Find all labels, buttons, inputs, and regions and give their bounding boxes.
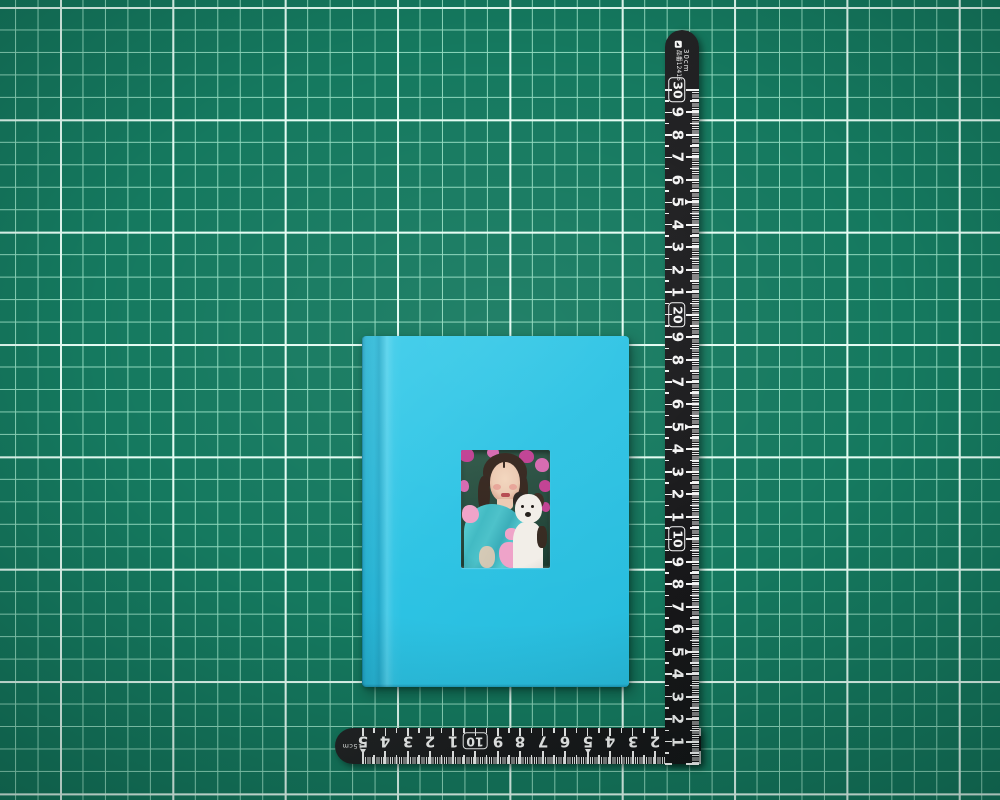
ruler-number: 6 — [670, 175, 685, 185]
ruler-number: 30 — [669, 77, 686, 102]
cm-tick — [632, 751, 634, 764]
cm-tick — [665, 763, 672, 765]
ruler-number: 2 — [670, 264, 685, 274]
half-cm-tick — [621, 728, 623, 733]
cm-tick — [699, 751, 701, 764]
cm-tick — [519, 751, 521, 764]
cm-tick — [686, 269, 699, 271]
half-cm-tick — [665, 482, 669, 484]
cm-tick — [686, 89, 699, 91]
cover-photo-inset — [461, 450, 550, 568]
cm-tick — [407, 751, 409, 764]
half-cm-tick — [690, 527, 699, 529]
ruler-number: 9 — [670, 107, 685, 117]
half-cm-tick — [665, 595, 669, 597]
ruler-number: 5 — [670, 422, 685, 432]
half-cm-tick — [576, 728, 578, 733]
horizontal-ruler-15cm: 15cm 5432110987654321 — [335, 728, 701, 764]
cm-arrow-marker — [585, 749, 591, 754]
cm-tick — [686, 718, 699, 720]
half-cm-tick — [576, 755, 578, 764]
ruler-number: 4 — [670, 220, 685, 230]
ruler-number: 2 — [670, 489, 685, 499]
half-cm-tick — [690, 100, 699, 102]
ruler-number: 6 — [670, 624, 685, 634]
cm-tick — [686, 741, 699, 743]
half-cm-tick — [665, 123, 669, 125]
photo-shading — [461, 450, 550, 568]
ruler-number: 7 — [670, 601, 685, 611]
ruler-number: 10 — [669, 527, 686, 552]
ruler-number: 9 — [493, 734, 503, 749]
half-cm-tick — [418, 755, 420, 764]
ruler-number: 3 — [670, 467, 685, 477]
ruler-number: 9 — [670, 332, 685, 342]
cm-tick — [699, 728, 701, 736]
half-cm-tick — [690, 392, 699, 394]
half-cm-tick — [531, 728, 533, 733]
ruler-number: 3 — [670, 242, 685, 252]
cm-tick — [686, 448, 699, 450]
cm-tick — [609, 751, 611, 764]
cm-tick — [686, 696, 699, 698]
half-cm-tick — [665, 730, 669, 732]
half-cm-tick — [531, 755, 533, 764]
shinwa-logo-icon — [674, 41, 681, 48]
half-cm-tick — [665, 752, 669, 754]
half-cm-tick — [690, 280, 699, 282]
half-cm-tick — [665, 348, 669, 350]
half-cm-tick — [690, 550, 699, 552]
half-cm-tick — [690, 258, 699, 260]
ruler-number: 5 — [670, 197, 685, 207]
half-cm-tick — [665, 213, 669, 215]
half-cm-tick — [690, 325, 699, 327]
ruler-number: 5 — [582, 734, 592, 749]
half-cm-tick — [665, 280, 669, 282]
half-cm-tick — [373, 755, 375, 764]
ruler-number: 5 — [670, 646, 685, 656]
half-cm-tick — [508, 755, 510, 764]
cm-tick — [686, 403, 699, 405]
cm-tick — [429, 751, 431, 764]
ruler-number: 3 — [627, 734, 637, 749]
half-cm-tick — [690, 617, 699, 619]
cm-tick — [452, 751, 454, 764]
half-cm-tick — [665, 505, 669, 507]
half-cm-tick — [441, 728, 443, 733]
ruler-number: 2 — [650, 734, 660, 749]
cm-tick — [686, 673, 699, 675]
cm-tick — [686, 516, 699, 518]
half-cm-tick — [508, 728, 510, 733]
ruler-number: 2 — [425, 734, 435, 749]
half-cm-tick — [690, 572, 699, 574]
cm-tick — [686, 156, 699, 158]
half-cm-tick — [643, 755, 645, 764]
ruler-number: 6 — [560, 734, 570, 749]
ruler-number: 7 — [670, 377, 685, 387]
half-cm-tick — [441, 755, 443, 764]
half-cm-tick — [690, 752, 699, 754]
half-cm-tick — [598, 755, 600, 764]
cm-tick — [686, 314, 699, 316]
cm-tick — [654, 751, 656, 764]
half-cm-tick — [665, 415, 669, 417]
half-cm-tick — [665, 707, 669, 709]
half-cm-tick — [690, 348, 699, 350]
ruler-number: 20 — [669, 302, 686, 327]
half-cm-tick — [665, 572, 669, 574]
half-cm-tick — [463, 755, 465, 764]
cm-tick — [686, 583, 699, 585]
half-cm-tick — [665, 145, 669, 147]
photo-stage: 15cm 5432110987654321 30cm 品番12416 30987… — [0, 0, 1000, 800]
vertical-ruler-30cm: 30cm 品番12416 309876543212098765432110987… — [665, 30, 699, 764]
book-page-edge — [362, 684, 629, 687]
cm-tick — [686, 561, 699, 563]
cm-tick — [686, 179, 699, 181]
half-cm-tick — [690, 190, 699, 192]
cm-tick — [686, 763, 699, 765]
ruler-number: 4 — [605, 734, 615, 749]
half-cm-tick — [665, 392, 669, 394]
cm-tick — [686, 111, 699, 113]
book-spine — [362, 336, 402, 687]
ruler-number: 6 — [670, 399, 685, 409]
cm-tick — [497, 751, 499, 764]
cm-tick — [686, 471, 699, 473]
book — [362, 336, 629, 687]
cm-arrow-marker — [360, 749, 366, 754]
half-cm-tick — [621, 755, 623, 764]
ruler-number: 2 — [670, 714, 685, 724]
cm-tick — [686, 246, 699, 248]
half-cm-tick — [690, 437, 699, 439]
half-cm-tick — [690, 460, 699, 462]
half-cm-tick — [665, 640, 669, 642]
ruler-number: 1 — [670, 736, 685, 746]
half-cm-tick — [690, 662, 699, 664]
half-cm-tick — [665, 460, 669, 462]
half-cm-tick — [486, 755, 488, 764]
half-cm-tick — [690, 730, 699, 732]
half-cm-tick — [690, 303, 699, 305]
cm-tick — [686, 606, 699, 608]
half-cm-tick — [665, 370, 669, 372]
ruler-number: 4 — [670, 669, 685, 679]
half-cm-tick — [690, 235, 699, 237]
ruler-number: 4 — [380, 734, 390, 749]
half-cm-tick — [690, 482, 699, 484]
ruler-number: 8 — [515, 734, 525, 749]
ruler-number: 8 — [670, 354, 685, 364]
half-cm-tick — [690, 505, 699, 507]
cm-tick — [542, 751, 544, 764]
ruler-number: 3 — [403, 734, 413, 749]
ruler-number: 1 — [670, 512, 685, 522]
ruler-number: 8 — [670, 579, 685, 589]
ruler-number: 7 — [670, 152, 685, 162]
cm-arrow-marker — [685, 424, 690, 430]
ruler-number: 10 — [463, 733, 488, 750]
half-cm-tick — [643, 728, 645, 733]
half-cm-tick — [665, 235, 669, 237]
half-cm-tick — [553, 728, 555, 733]
half-cm-tick — [396, 728, 398, 733]
half-cm-tick — [690, 595, 699, 597]
ruler-number: 4 — [670, 444, 685, 454]
cm-tick — [384, 751, 386, 764]
half-cm-tick — [553, 755, 555, 764]
half-cm-tick — [690, 145, 699, 147]
half-cm-tick — [598, 728, 600, 733]
half-cm-tick — [665, 437, 669, 439]
half-cm-tick — [690, 168, 699, 170]
half-cm-tick — [665, 190, 669, 192]
half-cm-tick — [690, 640, 699, 642]
half-cm-tick — [373, 728, 375, 733]
ruler-number: 9 — [670, 557, 685, 567]
cm-tick — [474, 751, 476, 764]
ruler-number: 7 — [537, 734, 547, 749]
ruler-number: 8 — [670, 130, 685, 140]
cm-tick — [564, 751, 566, 764]
half-cm-tick — [690, 685, 699, 687]
cm-tick — [686, 493, 699, 495]
cm-tick — [686, 538, 699, 540]
half-cm-tick — [665, 258, 669, 260]
cm-tick — [686, 336, 699, 338]
cm-tick — [686, 628, 699, 630]
half-cm-tick — [690, 370, 699, 372]
ruler-number: 1 — [670, 287, 685, 297]
cm-tick — [686, 134, 699, 136]
half-cm-tick — [690, 415, 699, 417]
cm-tick — [686, 381, 699, 383]
half-cm-tick — [418, 728, 420, 733]
cm-tick — [686, 359, 699, 361]
ruler-number: 3 — [670, 691, 685, 701]
half-cm-tick — [690, 123, 699, 125]
half-cm-tick — [665, 168, 669, 170]
half-cm-tick — [690, 213, 699, 215]
half-cm-tick — [665, 617, 669, 619]
ruler-number: 1 — [448, 734, 458, 749]
half-cm-tick — [665, 662, 669, 664]
cm-arrow-marker — [685, 199, 690, 205]
cm-arrow-marker — [685, 649, 690, 655]
cm-tick — [686, 291, 699, 293]
cm-tick — [686, 224, 699, 226]
half-cm-tick — [690, 707, 699, 709]
half-cm-tick — [396, 755, 398, 764]
ruler-number: 5 — [358, 734, 368, 749]
half-cm-tick — [665, 685, 669, 687]
